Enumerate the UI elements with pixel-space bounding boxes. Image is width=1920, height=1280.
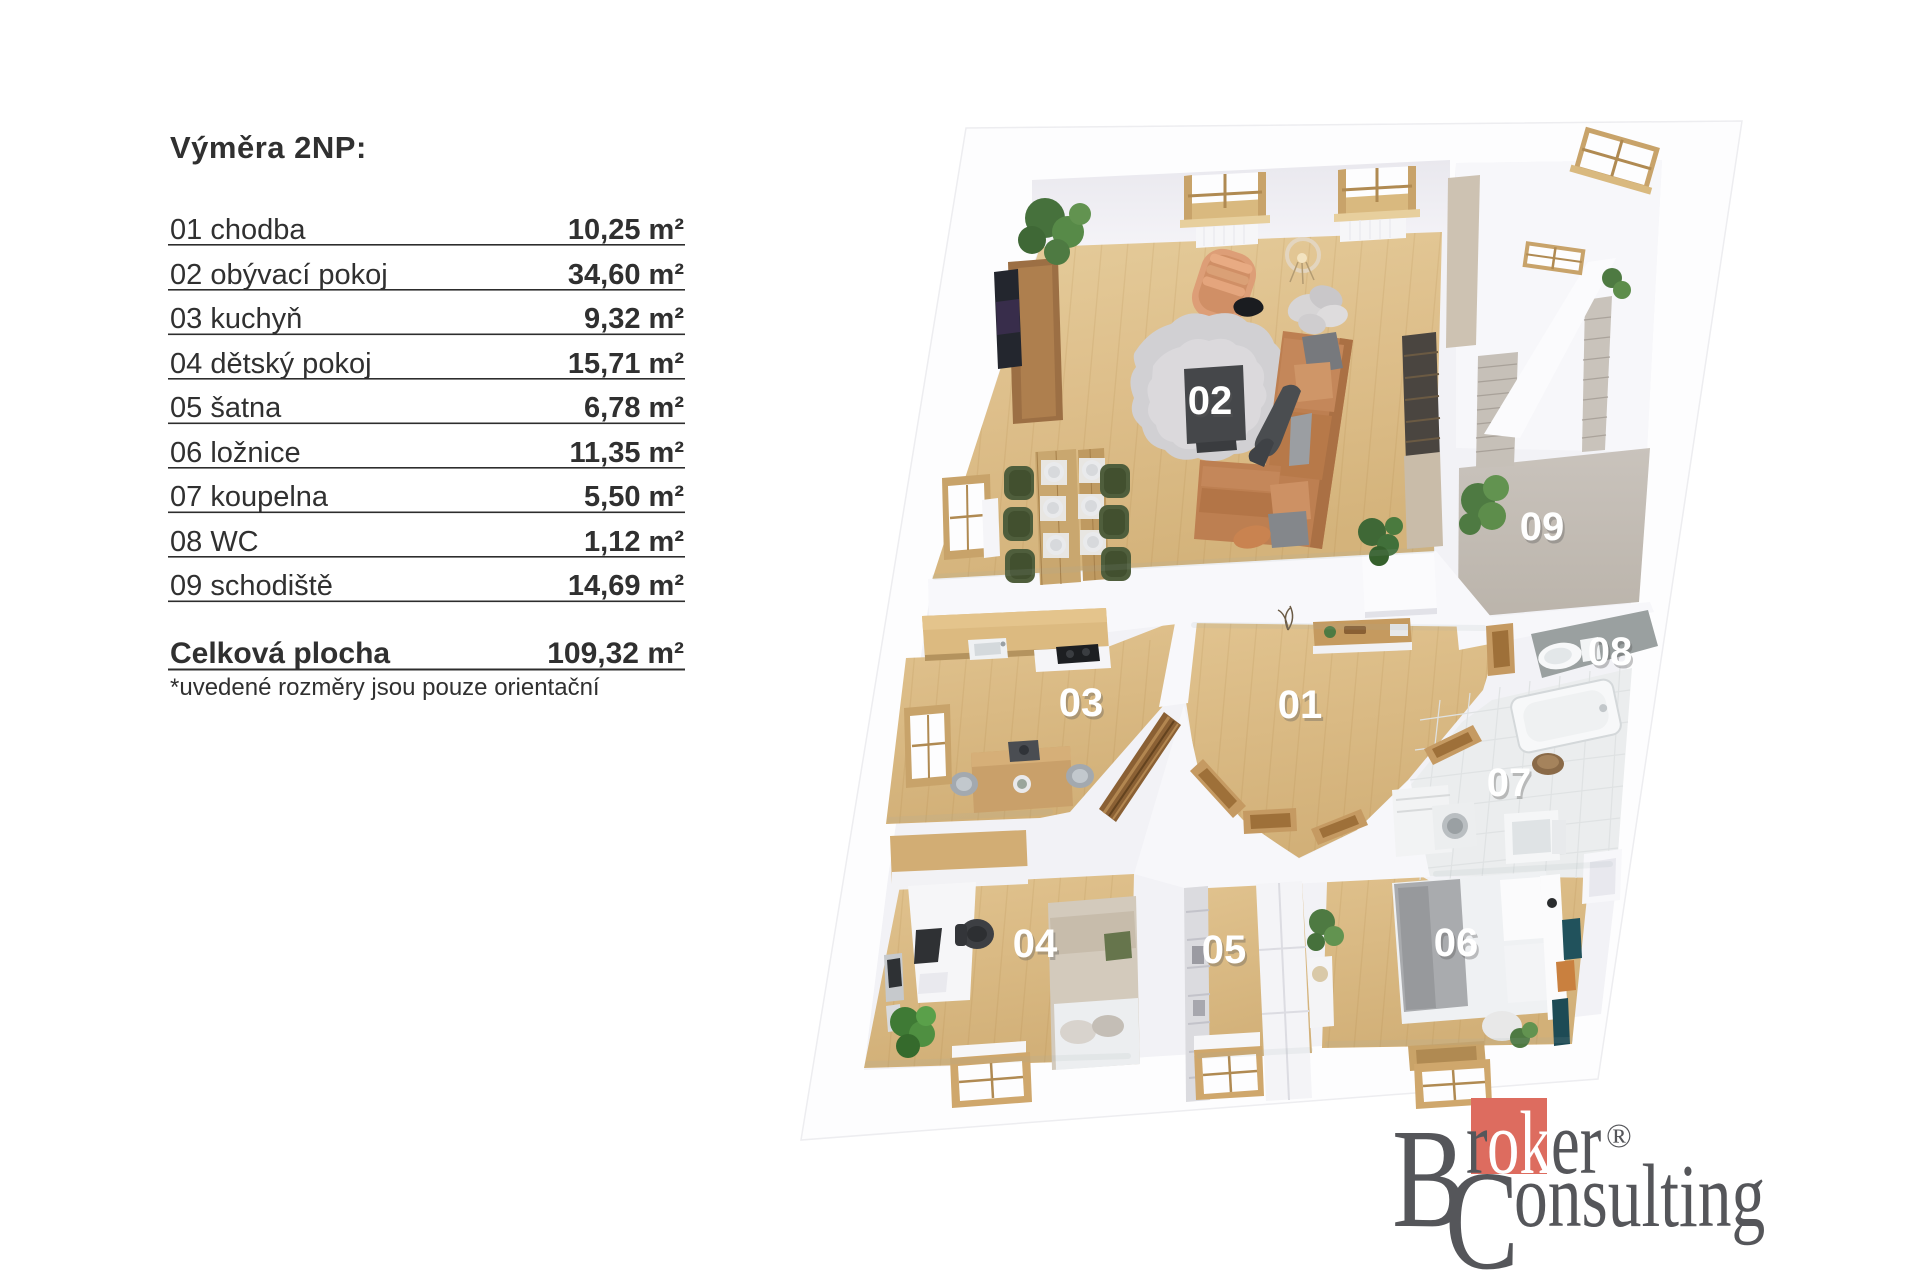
svg-text:11,35 m²: 11,35 m² [570,437,685,469]
svg-text:14,69 m²: 14,69 m² [568,570,684,602]
svg-text:07 koupelna: 07 koupelna [170,481,329,513]
svg-text:08: 08 [1588,630,1633,674]
svg-text:05: 05 [1202,928,1247,972]
svg-text:10,25 m²: 10,25 m² [568,214,684,246]
svg-text:01 chodba: 01 chodba [170,214,306,246]
svg-text:08 WC: 08 WC [170,526,259,558]
svg-text:onsulting: onsulting [1514,1147,1765,1247]
svg-text:*uvedené rozměry jsou pouze or: *uvedené rozměry jsou pouze orientační [170,674,600,701]
svg-text:06: 06 [1434,921,1479,965]
svg-text:15,71 m²: 15,71 m² [568,348,684,380]
svg-text:09: 09 [1520,505,1565,549]
svg-text:Celková plocha: Celková plocha [170,637,390,670]
svg-text:109,32 m²: 109,32 m² [547,637,684,670]
svg-text:9,32 m²: 9,32 m² [584,303,684,335]
svg-text:04 dětský pokoj: 04 dětský pokoj [170,348,372,380]
svg-text:1,12 m²: 1,12 m² [584,526,684,558]
svg-text:06 ložnice: 06 ložnice [170,437,301,469]
svg-text:07: 07 [1487,761,1532,805]
svg-text:5,50 m²: 5,50 m² [584,481,684,513]
svg-text:C: C [1445,1142,1519,1280]
svg-text:02: 02 [1188,379,1233,423]
svg-text:Výměra 2NP:: Výměra 2NP: [170,130,367,165]
svg-text:6,78 m²: 6,78 m² [584,392,684,424]
svg-text:05 šatna: 05 šatna [170,392,282,424]
svg-text:01: 01 [1278,683,1323,727]
svg-text:02 obývací pokoj: 02 obývací pokoj [170,259,388,291]
svg-text:34,60 m²: 34,60 m² [568,259,684,291]
svg-text:09 schodiště: 09 schodiště [170,570,333,602]
svg-text:04: 04 [1013,922,1058,966]
svg-text:03 kuchyň: 03 kuchyň [170,303,302,335]
svg-text:03: 03 [1059,681,1104,725]
